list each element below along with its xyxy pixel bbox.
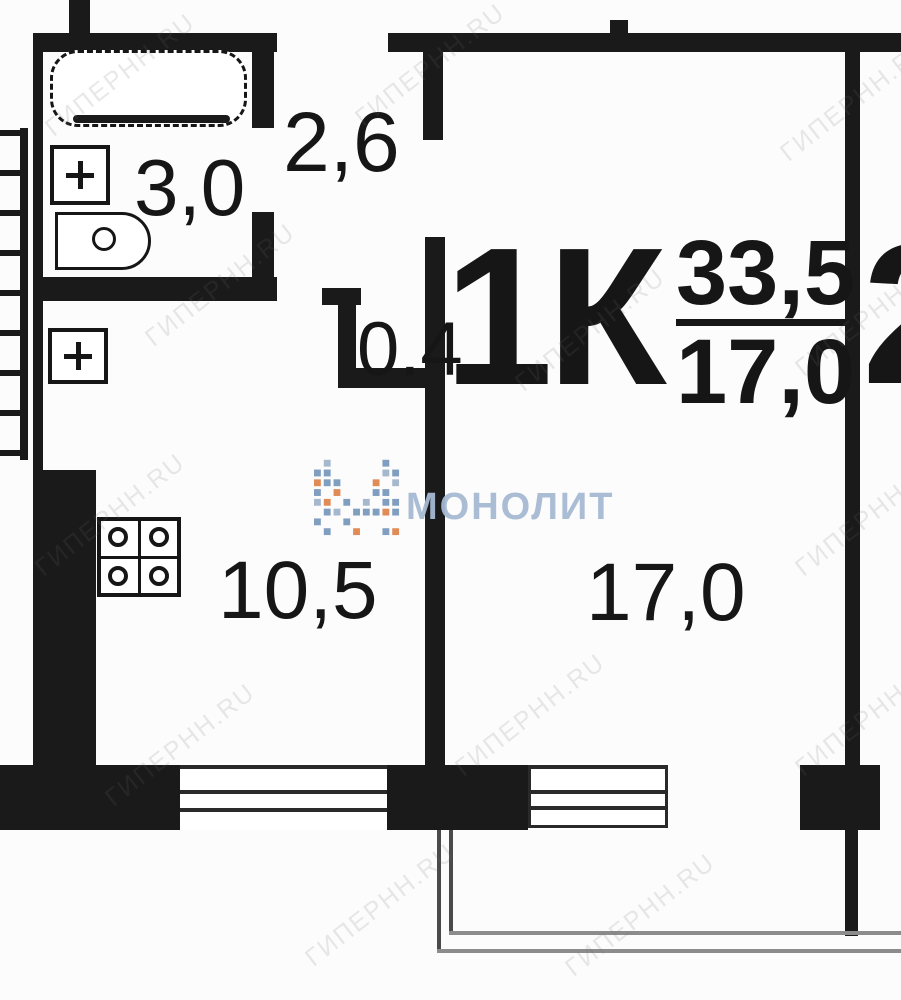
stair-step <box>0 450 28 456</box>
living-room-window <box>528 763 668 830</box>
kitchen-area-label: 10,5 <box>218 550 378 632</box>
watermark-tile: ГИПЕРНН.RU <box>560 848 721 983</box>
window-line <box>180 790 387 794</box>
wall-bathroom-right-upper <box>252 52 274 128</box>
wall-left <box>33 33 43 473</box>
wall-stub-top-mid <box>610 20 628 34</box>
closet-area-label: 0.4 <box>357 312 463 388</box>
stair-step <box>0 210 28 216</box>
stair-step <box>0 170 28 176</box>
window-line <box>528 765 668 769</box>
area-fraction: 33,5 17,0 <box>676 231 846 414</box>
burner-icon <box>108 566 128 586</box>
monolit-logo-icon <box>312 450 404 538</box>
stair-step <box>0 250 28 256</box>
window-edge <box>665 765 668 828</box>
brand-watermark: МОНОЛИТ <box>406 486 614 529</box>
kitchen-sink <box>48 328 108 384</box>
stair-step <box>0 290 28 296</box>
window-line <box>528 806 668 810</box>
floor-plan: 3,0 2,6 0.4 10,5 17,0 1К 33,5 17,0 2 <box>0 0 901 1000</box>
stair-step <box>0 330 28 336</box>
window-line <box>180 808 387 812</box>
plus-icon <box>54 149 106 201</box>
living-room-area-label: 17,0 <box>586 552 746 634</box>
burner-icon <box>149 566 169 586</box>
window-line <box>528 790 668 794</box>
balcony-rail-bottom-inner <box>449 931 901 935</box>
stair-step <box>0 130 28 136</box>
bathroom-area-label: 3,0 <box>134 148 245 228</box>
window-line <box>528 825 668 828</box>
total-area-value: 33,5 <box>676 231 846 326</box>
wall-bottom-mid <box>385 765 528 830</box>
stove-divider <box>101 556 177 559</box>
bathroom-sink <box>50 145 110 205</box>
window-edge <box>528 765 531 828</box>
balcony-rail-bottom-outer <box>437 949 901 953</box>
toilet-flush-icon <box>92 227 116 251</box>
wall-right-lower <box>845 830 858 936</box>
kitchen-window <box>180 763 387 830</box>
stairs <box>0 126 28 462</box>
plus-icon <box>52 332 104 380</box>
burner-icon <box>149 527 169 547</box>
window-line <box>180 765 387 769</box>
stair-step <box>0 410 28 416</box>
bathtub-rim <box>73 115 230 123</box>
watermark-tile: ГИПЕРНН.RU <box>775 33 901 168</box>
stair-step <box>0 370 28 376</box>
